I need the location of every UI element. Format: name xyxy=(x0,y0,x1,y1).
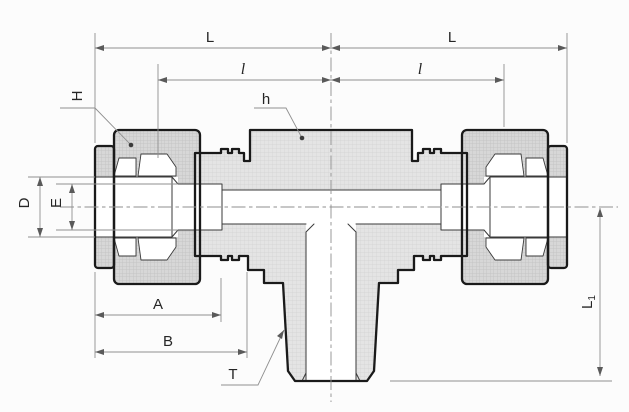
dim-L-right: L xyxy=(331,29,567,51)
label-L-right: L xyxy=(448,29,456,46)
label-D: D xyxy=(16,197,33,208)
dim-l-left: l xyxy=(158,61,331,83)
dim-A: A xyxy=(95,296,221,318)
label-L-left: L xyxy=(206,29,214,46)
tee-fitting-cross-section-drawing: L L l l D E A xyxy=(0,0,629,412)
fitting-drawing-page: L L l l D E A xyxy=(0,0,629,412)
label-T: T xyxy=(228,366,237,383)
label-A: A xyxy=(153,296,163,313)
dim-l-right: l xyxy=(331,61,504,83)
label-l-left: l xyxy=(241,61,246,78)
label-E: E xyxy=(48,198,65,208)
dim-L-left: L xyxy=(95,29,331,51)
dim-L1: L1 xyxy=(579,208,603,376)
dim-D: D xyxy=(16,177,43,237)
leader-T: T xyxy=(221,330,284,385)
dim-B: B xyxy=(95,333,247,355)
label-l-right: l xyxy=(418,61,423,78)
label-h: h xyxy=(262,91,270,108)
label-H: H xyxy=(69,91,86,102)
label-B: B xyxy=(163,333,173,350)
label-L1: L1 xyxy=(579,295,598,309)
